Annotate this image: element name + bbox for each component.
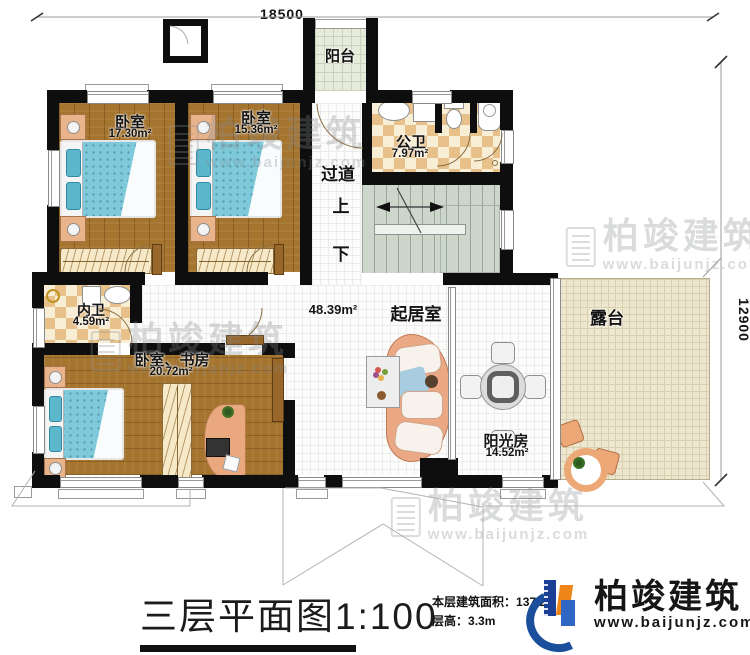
window — [33, 308, 45, 348]
window-sill — [176, 489, 206, 499]
window — [501, 210, 514, 250]
bedroom2-door — [274, 244, 284, 275]
wardrobe — [162, 383, 192, 479]
balcony-railing — [315, 19, 368, 29]
wall — [32, 272, 145, 285]
balcony-wall — [366, 18, 378, 103]
window — [412, 91, 452, 104]
nightstand — [190, 216, 216, 242]
brand-block: 柏竣建筑 www.baijunjz.com — [594, 580, 750, 631]
window — [48, 150, 60, 207]
window-sill — [58, 489, 144, 499]
wall — [362, 172, 513, 185]
sunroom-glass-wall — [448, 287, 456, 460]
title-underline — [140, 645, 356, 652]
watermark-logo-icon — [391, 497, 421, 537]
wall — [202, 475, 298, 488]
dimension-right: 12900 — [736, 298, 750, 342]
flower-vase — [375, 367, 381, 373]
sink — [104, 286, 131, 304]
dining-chair — [524, 375, 546, 399]
window — [60, 477, 142, 488]
room-label-terrace: 露台 — [590, 304, 624, 329]
toilet-bowl — [446, 109, 462, 129]
dining-chair — [491, 342, 515, 364]
bed — [44, 388, 124, 460]
window — [178, 477, 204, 488]
dimension-top: 18500 — [260, 6, 304, 22]
dining-chair — [460, 375, 482, 399]
stairs-up-label: 上 — [333, 192, 350, 217]
window-sill — [14, 486, 32, 498]
room-area-living: 48.39m² — [309, 302, 357, 317]
wall — [32, 475, 60, 488]
room-area-bedroom1: 17.30m² — [109, 128, 152, 140]
wall — [500, 90, 513, 130]
wardrobe — [196, 248, 274, 274]
watermark: 柏竣建筑 www.baijunjz.com — [391, 488, 589, 545]
wall — [470, 103, 477, 133]
bed — [60, 140, 156, 218]
window-sill — [296, 489, 328, 499]
stairs-down-label: 下 — [333, 240, 350, 265]
floor-height-label: 层高： — [432, 614, 468, 628]
stair-landing-outline — [440, 205, 500, 273]
window — [213, 91, 283, 104]
desk-plant — [222, 406, 234, 418]
terrace-plant — [573, 457, 585, 469]
wall — [500, 162, 513, 210]
window — [87, 91, 149, 104]
watermark-url: www.baijunjz.com — [428, 524, 589, 545]
table-cup — [377, 391, 386, 400]
watermark-logo-icon — [566, 227, 596, 267]
terrace-window-wall — [550, 278, 561, 480]
watermark-url: www.baijunjz.com — [603, 254, 750, 275]
watermark-name: 柏竣建筑 — [206, 116, 367, 152]
window — [298, 477, 326, 488]
room-area-bedroom-study: 20.72m² — [150, 366, 193, 378]
wall-column — [420, 458, 458, 488]
window — [33, 406, 45, 454]
wardrobe — [60, 248, 152, 274]
coffee-table — [366, 356, 400, 408]
floor-plan-page: 柏竣建筑 www.baijunjz.com 柏竣建筑 www.baijunjz.… — [0, 0, 750, 655]
drawing-title-scale: 1:100 — [335, 596, 438, 637]
nightstand — [44, 366, 66, 388]
watermark-logo-icon — [91, 331, 121, 371]
brand-logo-icon — [524, 576, 590, 642]
wall — [324, 475, 342, 488]
bedroom1-door — [152, 244, 162, 275]
wall — [443, 273, 558, 285]
room-area-public-bath: 7.97m² — [392, 148, 428, 160]
room-area-bedroom2: 15.36m² — [235, 124, 278, 136]
floor-height-value: 3.3m — [468, 614, 495, 628]
room-area-sunroom: 14.52m² — [486, 447, 529, 459]
shower-head — [46, 289, 60, 303]
nightstand — [60, 216, 86, 242]
window — [342, 477, 422, 488]
watermark-name: 柏竣建筑 — [603, 218, 750, 254]
wall — [180, 272, 268, 285]
wall — [32, 346, 44, 406]
wall — [378, 90, 412, 103]
wall — [130, 285, 142, 323]
dining-table — [480, 364, 526, 410]
drawing-title: 三层平面图1:100 — [140, 586, 438, 655]
room-label-living: 起居室 — [391, 300, 442, 325]
wall — [47, 90, 59, 150]
wall — [47, 205, 59, 278]
room-label-corridor: 过道 — [321, 160, 355, 185]
room-label-balcony: 阳台 — [325, 45, 355, 66]
drawing-title-text: 三层平面图 — [140, 596, 335, 637]
watermark-logo-icon — [169, 125, 199, 165]
sink — [378, 100, 410, 121]
brand-website: www.baijunjz.com — [594, 614, 750, 631]
brand-name: 柏竣建筑 — [594, 580, 750, 614]
wall — [435, 103, 442, 133]
floor-area-label: 本层建筑面积： — [432, 595, 516, 609]
wall — [140, 475, 178, 488]
chimney — [163, 19, 208, 63]
stair-handrail — [374, 224, 466, 235]
nightstand — [60, 114, 86, 140]
sofa-cushion-dark — [425, 375, 438, 388]
watermark: 柏竣建筑 www.baijunjz.com — [566, 218, 750, 275]
window — [501, 130, 514, 164]
room-area-inner-bath: 4.59m² — [73, 316, 109, 328]
watermark-name: 柏竣建筑 — [428, 488, 589, 524]
